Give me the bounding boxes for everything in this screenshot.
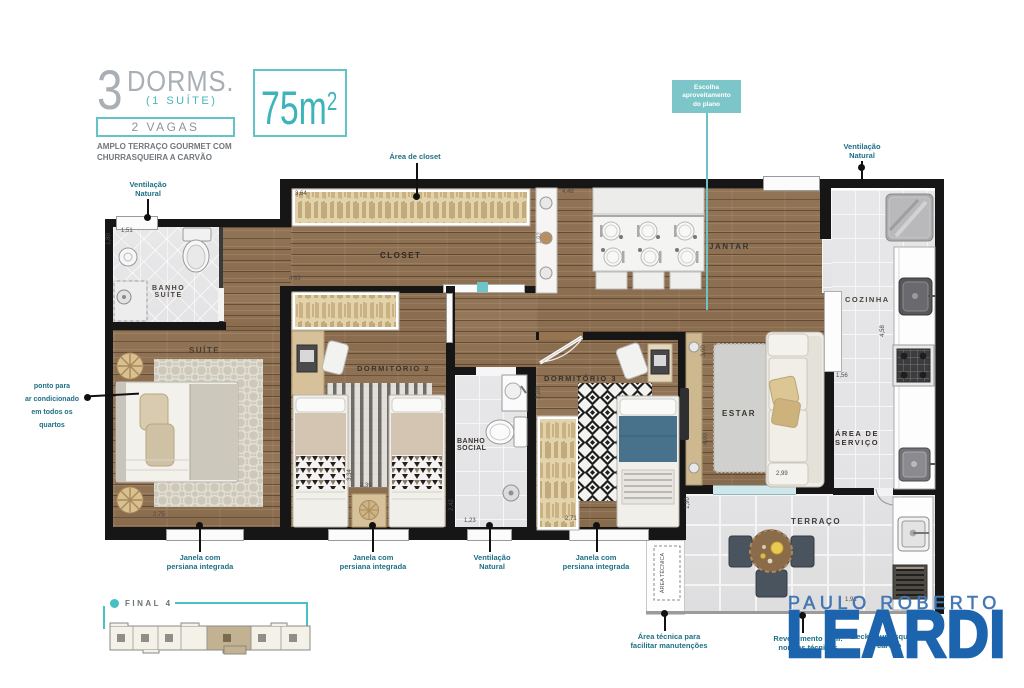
svg-text:ÁREA TÉCNICA: ÁREA TÉCNICA [659,553,666,594]
